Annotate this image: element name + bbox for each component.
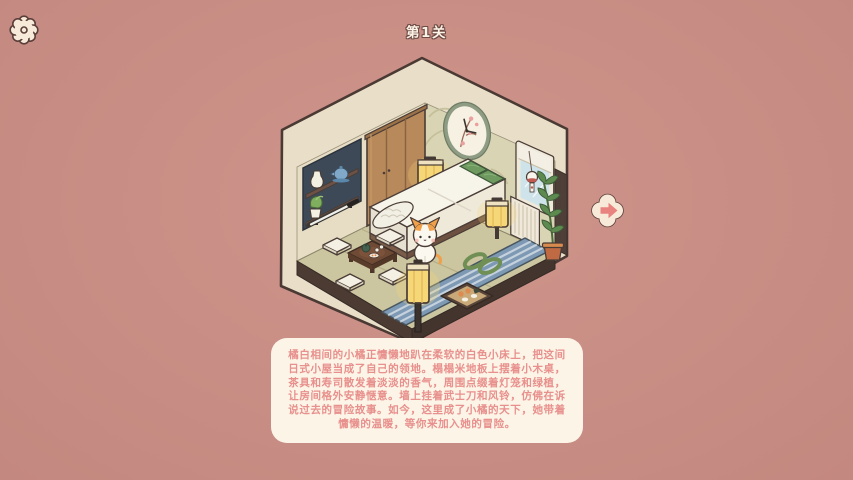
arrow-right-icon (591, 193, 624, 228)
room-scene (251, 47, 591, 349)
game-screen: 第1关 (0, 0, 853, 480)
next-button[interactable] (591, 193, 624, 228)
story-panel: 橘白相间的小橘正慵懒地趴在柔软的白色小床上，把这间日式小屋当成了自己的领地。榻榻… (271, 338, 583, 443)
room-illustration (251, 47, 591, 349)
calico-cat (411, 218, 441, 264)
level-indicator: 第1关 (0, 21, 853, 41)
story-text: 橘白相间的小橘正慵懒地趴在柔软的白色小床上，把这间日式小屋当成了自己的领地。榻榻… (288, 349, 566, 432)
